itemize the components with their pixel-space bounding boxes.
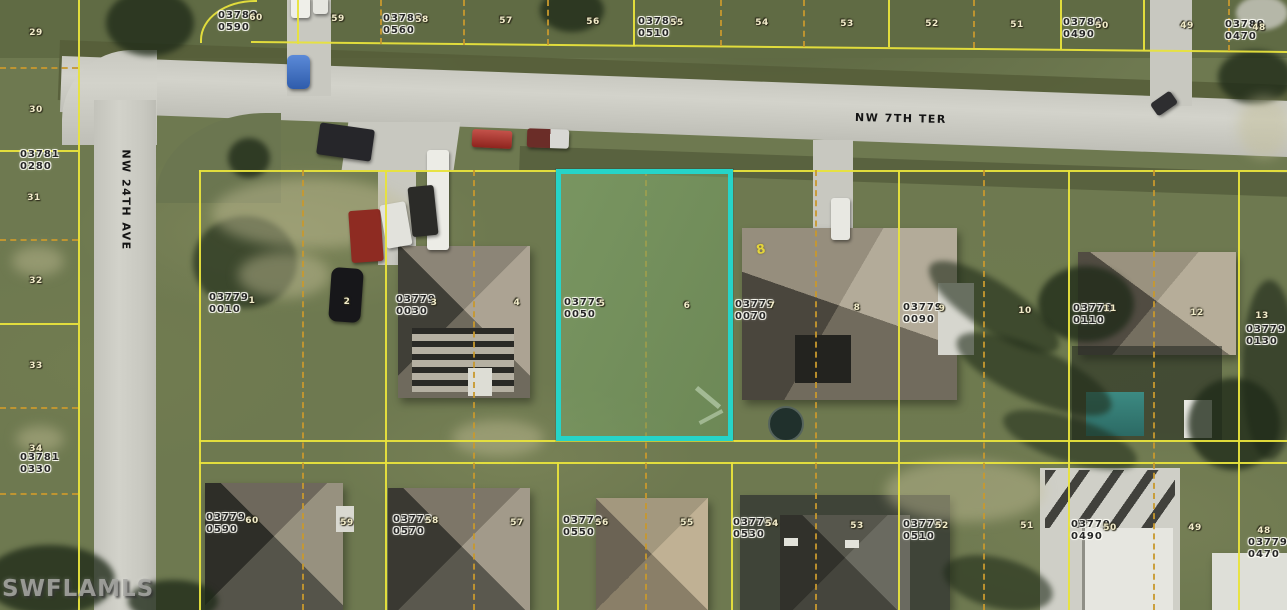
lot-line (983, 170, 985, 610)
parcel-id-label: 03779 0090 (903, 302, 943, 325)
vehicle-blue-car (287, 55, 310, 89)
lot-number: 60 (249, 13, 263, 23)
lot-number: 55 (680, 518, 694, 528)
vehicle-car-trailer (527, 128, 570, 148)
lot-number: 7 (769, 301, 776, 311)
street-label-nw-24th-ave: NW 24TH AVE (120, 149, 133, 250)
lot-number: 56 (595, 518, 609, 528)
driveway (1150, 0, 1192, 106)
dirt-patch (1238, 96, 1287, 158)
lot-line (302, 170, 304, 610)
parcel-line (0, 323, 78, 325)
lot-number: 6 (684, 301, 691, 311)
lot-number: 2 (344, 297, 351, 307)
parcel-id-label: 03781 0330 (20, 452, 60, 475)
parcel-line (888, 0, 890, 47)
lot-line (463, 0, 465, 45)
lot-number: 48 (1252, 23, 1266, 33)
tree-canopy (1218, 50, 1287, 104)
parcel-line (557, 462, 559, 610)
vehicle-red-car (472, 129, 513, 149)
lot-number: 53 (850, 521, 864, 531)
parcel-line (1068, 170, 1070, 610)
lot-number: 8 (854, 303, 861, 313)
vehicle-white-van (291, 0, 310, 18)
parcel-id-label: 03781 0280 (20, 149, 60, 172)
vehicle-black-suv (328, 267, 364, 323)
parcel-id-label: 03779 0470 (1248, 537, 1287, 560)
parcel-line (78, 0, 80, 610)
vehicle-white-car (831, 198, 850, 240)
dirt-patch (452, 420, 544, 456)
lot-number: 12 (1190, 308, 1204, 318)
lot-line (0, 407, 78, 409)
lot-number: 56 (586, 17, 600, 27)
lot-number: 53 (840, 19, 854, 29)
parcel-line (1238, 170, 1240, 610)
lot-number: 4 (514, 298, 521, 308)
parcel-line (199, 170, 201, 610)
lot-number: 57 (499, 16, 513, 26)
lot-number: 59 (340, 518, 354, 528)
lot-number: 59 (331, 14, 345, 24)
porch (468, 368, 492, 396)
dirt-patch (885, 460, 1045, 522)
skylight (845, 540, 859, 548)
parcel-line (898, 170, 900, 610)
lot-line (720, 0, 722, 46)
lot-line (0, 67, 78, 69)
lot-line (815, 170, 817, 610)
tree-canopy (228, 138, 270, 178)
parcel-id-label: 03779 0010 (209, 292, 249, 315)
roof-stripes (412, 328, 514, 392)
street-label-nw-7th-ter: NW 7TH TER (855, 111, 947, 126)
lot-line (0, 239, 78, 241)
house-roof (388, 488, 530, 610)
parcel-line (1143, 0, 1145, 50)
lot-number: 52 (925, 19, 939, 29)
lot-number: 34 (29, 444, 43, 454)
house-roof (205, 483, 343, 610)
lot-line (547, 0, 549, 45)
dirt-patch (12, 246, 64, 276)
lot-line (973, 0, 975, 48)
parcel-id-label: 03779 0130 (1246, 324, 1286, 347)
lot-number: 49 (1188, 523, 1202, 533)
house-roof (596, 498, 708, 610)
lot-number: 3 (431, 298, 438, 308)
lot-number: 31 (27, 193, 41, 203)
lot-number: 1 (249, 296, 256, 306)
parcel-line (199, 440, 1287, 442)
vehicle-dark-suv (407, 185, 438, 237)
parcel-line (633, 0, 635, 46)
lot-number: 32 (29, 276, 43, 286)
lot-number: 52 (935, 521, 949, 531)
lot-number: 13 (1255, 311, 1269, 321)
lot-line (1153, 170, 1155, 610)
vehicle-red-truck (348, 209, 384, 263)
aerial-parcel-map: NW 7TH TER NW 24TH AVE 03780 059003780 0… (0, 0, 1287, 610)
lot-number: 9 (939, 304, 946, 314)
lot-number: 11 (1103, 304, 1117, 314)
solar-panel (795, 335, 851, 383)
lot-line (0, 493, 78, 495)
lot-number: 48 (1257, 526, 1271, 536)
lot-number: 10 (1018, 306, 1032, 316)
lot-number: 51 (1020, 521, 1034, 531)
parcel-line (385, 170, 387, 610)
skylight (784, 538, 798, 546)
tree-canopy (1188, 378, 1280, 470)
lot-number: 57 (510, 518, 524, 528)
parcel-line (199, 462, 1287, 464)
parcel-line (297, 0, 299, 44)
lot-number: 49 (1180, 21, 1194, 31)
lot-number: 60 (245, 516, 259, 526)
lot-line (473, 170, 475, 610)
roof-ridge (780, 515, 910, 610)
mls-watermark: SWFLAMLS (2, 576, 154, 602)
lot-number: 58 (425, 516, 439, 526)
parcel-id-label: 03779 0590 (206, 512, 246, 535)
dirt-patch (238, 252, 330, 298)
lot-number: 55 (670, 18, 684, 28)
lot-line (380, 0, 382, 44)
lot-line (803, 0, 805, 47)
lot-number: 54 (755, 18, 769, 28)
lot-number: 33 (29, 361, 43, 371)
lot-number: 50 (1103, 523, 1117, 533)
vehicle-white-car (313, 0, 328, 14)
parcel-line (199, 170, 1287, 172)
lot-number: 30 (29, 105, 43, 115)
round-pool (768, 406, 804, 442)
lot-number: 54 (765, 519, 779, 529)
lot-number: 51 (1010, 20, 1024, 30)
white-building (1212, 553, 1287, 610)
lot-number: 50 (1095, 21, 1109, 31)
parcel-line (1060, 0, 1062, 49)
lot-number: 5 (599, 299, 606, 309)
lot-number: 29 (29, 28, 43, 38)
lot-number: 58 (415, 15, 429, 25)
